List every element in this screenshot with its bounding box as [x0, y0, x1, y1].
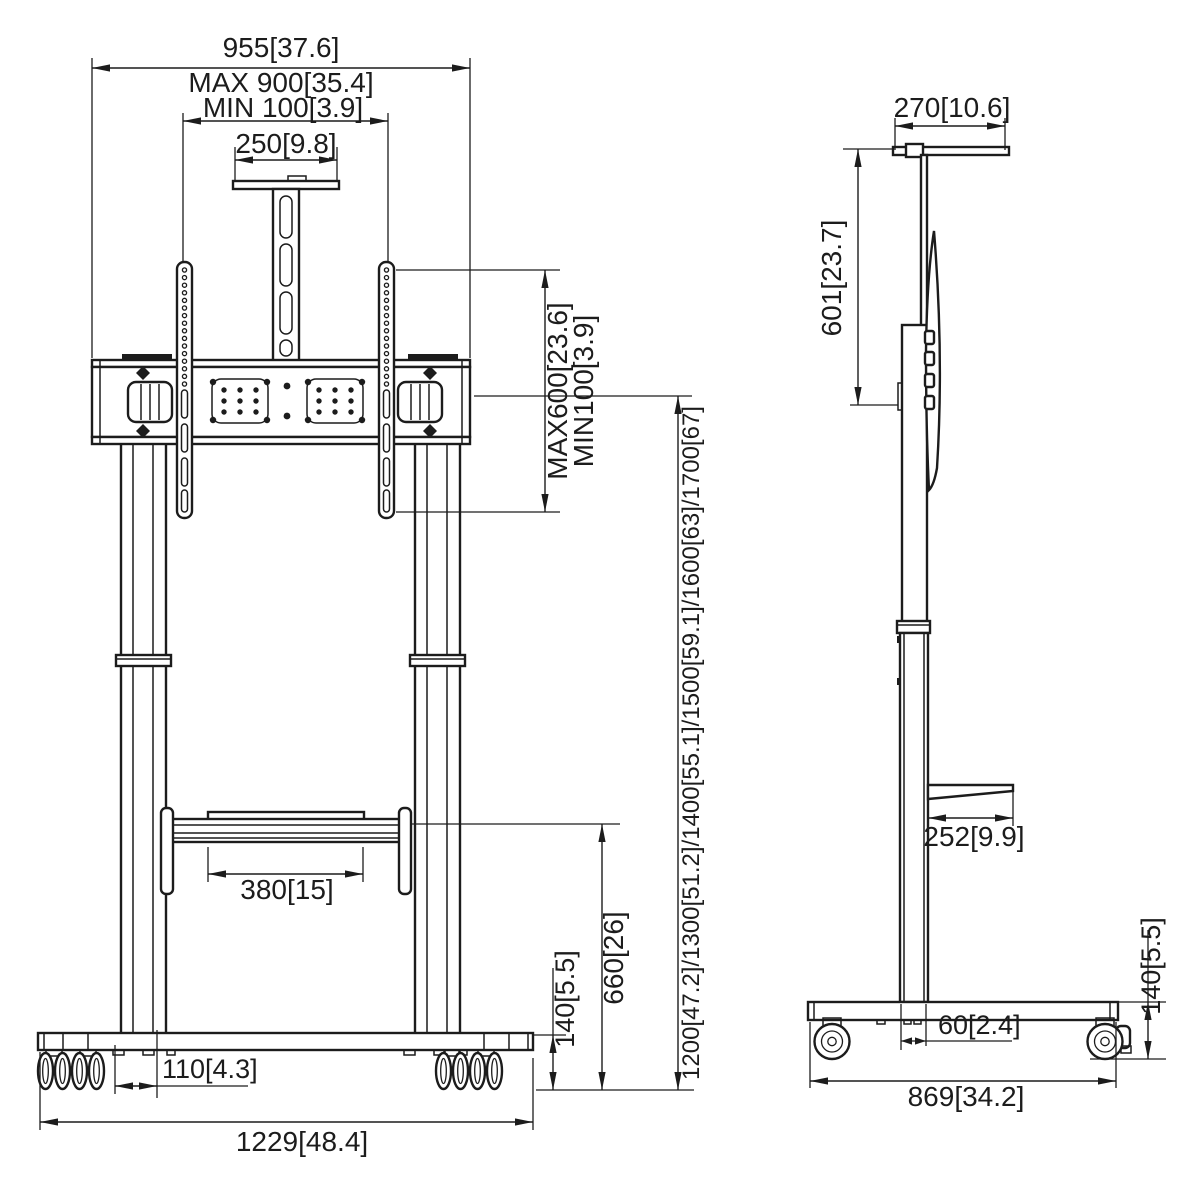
- front-vesa-rail-right: [379, 262, 394, 518]
- label-screen-heights: 1200[47.2]/1300[51.2]/1400[55.1]/1500[59…: [678, 406, 705, 1080]
- label-base-width: 1229[48.4]: [236, 1126, 368, 1157]
- front-view: 955[37.6] MAX 900[35.4] MIN 100[3.9] 250…: [38, 32, 705, 1157]
- side-shelf: [928, 785, 1013, 799]
- label-upper-column-height: 601[23.7]: [816, 220, 847, 337]
- dim-camera-plate-width: 250[9.8]: [235, 128, 337, 180]
- front-handle-left: [128, 382, 172, 422]
- dim-screen-heights: 1200[47.2]/1300[51.2]/1400[55.1]/1500[59…: [474, 396, 705, 1090]
- label-top-shelf-depth: 270[10.6]: [894, 92, 1011, 123]
- label-vesa-height-min: MIN100[3.9]: [568, 315, 599, 468]
- dim-top-shelf-depth: 270[10.6]: [894, 92, 1011, 150]
- dim-shelf-width: 380[15]: [208, 847, 363, 905]
- front-handle-right: [398, 382, 442, 422]
- front-column-right: [410, 444, 465, 1033]
- label-camera-plate-width: 250[9.8]: [235, 128, 336, 159]
- tv-stand-dimension-drawing: 955[37.6] MAX 900[35.4] MIN 100[3.9] 250…: [0, 0, 1200, 1200]
- dim-base-height-front: 140[5.5]: [533, 950, 580, 1090]
- label-vesa-width-min: MIN 100[3.9]: [203, 92, 363, 123]
- front-crossbar: [92, 354, 470, 444]
- side-view: 270[10.6] 601[23.7] 252[9.9] 60[2.4] 8: [808, 92, 1166, 1112]
- label-shelf-width: 380[15]: [240, 874, 333, 905]
- label-column-depth: 60[2.4]: [938, 1010, 1021, 1040]
- front-camera-shelf: [233, 176, 339, 361]
- label-base-height-side: 140[5.5]: [1136, 917, 1166, 1015]
- front-vesa-rail-left: [177, 262, 192, 518]
- front-casters: [38, 1050, 502, 1089]
- dim-shelf-depth: 252[9.9]: [923, 791, 1024, 852]
- label-shelf-height: 660[26]: [598, 911, 629, 1004]
- label-shelf-depth: 252[9.9]: [923, 821, 1024, 852]
- side-column: [897, 155, 930, 1002]
- label-base-depth: 869[34.2]: [908, 1081, 1025, 1112]
- front-column-left: [116, 444, 171, 1033]
- front-base: [38, 1033, 533, 1089]
- label-total-width: 955[37.6]: [223, 32, 340, 63]
- dim-upper-column-height: 601[23.7]: [816, 149, 898, 405]
- technical-drawing-page: 955[37.6] MAX 900[35.4] MIN 100[3.9] 250…: [0, 0, 1200, 1200]
- label-base-height-front: 140[5.5]: [550, 950, 580, 1048]
- label-caster-inset: 110[4.3]: [162, 1054, 258, 1084]
- side-camera-shelf: [893, 144, 1009, 157]
